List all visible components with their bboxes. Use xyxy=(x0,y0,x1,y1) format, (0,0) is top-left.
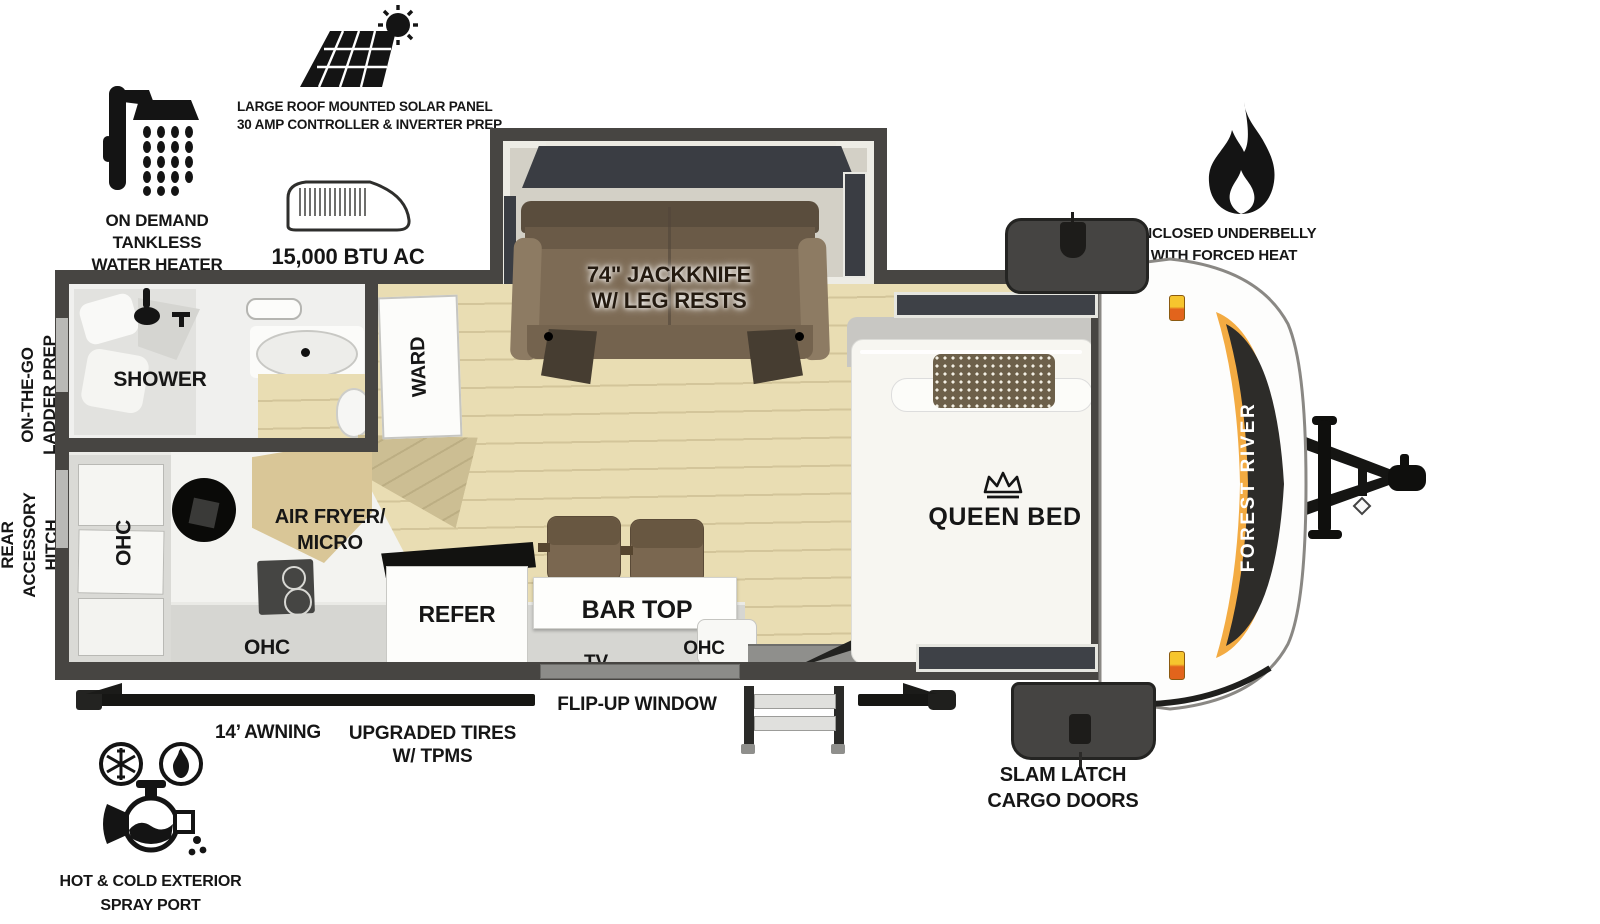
faucet-icon-stem xyxy=(179,312,184,327)
bathroom-light xyxy=(246,298,302,320)
forced-heat-flame-icon xyxy=(1206,102,1278,216)
sink-drain xyxy=(301,348,310,357)
bar-stool-2-tab xyxy=(621,546,633,555)
spray-port-icon xyxy=(93,738,213,862)
front-cap xyxy=(1098,254,1333,716)
bathroom-wall-right xyxy=(365,284,378,452)
queen-bed-label: QUEEN BED xyxy=(905,503,1105,533)
flip-up-window-label: FLIP-UP WINDOW xyxy=(537,694,737,716)
rear-accessory-hitch-label: REAR ACCESSORY HITCH xyxy=(0,470,63,620)
hot-flame-icon xyxy=(161,744,201,784)
marker-light-top xyxy=(1169,295,1185,321)
ac-label: 15,000 BTU AC xyxy=(258,244,438,270)
shower-label: SHOWER xyxy=(95,368,225,393)
slideout-wall-left xyxy=(490,128,503,284)
cold-snowflake-icon xyxy=(101,744,141,784)
slideout-right-window xyxy=(843,172,867,278)
entry-step-2 xyxy=(754,716,836,731)
shower-head-icon xyxy=(126,288,170,336)
cooktop-burner-1 xyxy=(282,566,306,590)
awning-label: 14’ AWNING xyxy=(193,722,343,744)
bed-window-top xyxy=(894,292,1098,318)
water-drops xyxy=(143,126,193,196)
ohc-left-label: OHC xyxy=(100,498,150,588)
awning-rail-right xyxy=(858,694,938,706)
air-fryer-label: AIR FRYER/ MICRO xyxy=(245,504,415,556)
tankless-water-heater-icon xyxy=(103,84,207,196)
brand-label: FOREST RIVER xyxy=(1238,372,1264,602)
ohc-kitchen-label: OHC xyxy=(236,636,298,661)
valve-icon xyxy=(103,780,206,855)
sofa-label: 74" JACKKNIFE W/ LEG RESTS xyxy=(544,262,794,314)
ac-unit-icon xyxy=(278,170,416,236)
bed-pillow xyxy=(933,354,1055,408)
solar-panel-icon xyxy=(292,5,424,93)
refrigerator: REFER xyxy=(386,566,528,664)
rear-wall-window-2 xyxy=(56,470,68,548)
sofa-pivot-right xyxy=(795,332,804,341)
solar-label: LARGE ROOF MOUNTED SOLAR PANEL 30 AMP CO… xyxy=(237,98,477,134)
rv-floorplan-diagram: ON DEMAND TANKLESS WATER HEATER LARGE RO… xyxy=(0,0,1600,924)
cooktop-burner-2 xyxy=(284,588,312,616)
bar-stool-2-back xyxy=(631,520,703,548)
cargo-box-handle xyxy=(1069,714,1091,744)
bar-stool-1-back xyxy=(548,517,620,545)
entry-steps-foot-right xyxy=(831,744,845,754)
entry-step-1 xyxy=(754,694,836,709)
slideout-top-window xyxy=(522,146,858,188)
ward-label: WARD xyxy=(406,307,434,428)
slideout-top-window-frame xyxy=(546,142,836,146)
marker-light-bottom xyxy=(1169,651,1185,680)
flip-up-window xyxy=(540,664,740,679)
propane-regulator-stem xyxy=(1071,212,1074,224)
propane-regulator xyxy=(1060,222,1086,258)
spray-port-label: HOT & COLD EXTERIOR SPRAY PORT xyxy=(58,870,243,918)
bar-stool-1-tab xyxy=(538,543,550,552)
slideout-wall-right xyxy=(874,128,887,284)
wall-top-left xyxy=(55,270,503,284)
bathroom-wall-bottom xyxy=(69,438,378,452)
rear-wall-window-1 xyxy=(56,318,68,392)
cabinet-door-3 xyxy=(78,598,164,656)
kitchen-sink-basin xyxy=(189,498,220,529)
water-heater-label: ON DEMAND TANKLESS WATER HEATER xyxy=(67,210,247,276)
bar-stool-2 xyxy=(630,519,704,585)
slideout-wall-top xyxy=(490,128,887,141)
sofa-pivot-left xyxy=(544,332,553,341)
tires-label: UPGRADED TIRES W/ TPMS xyxy=(340,722,525,768)
sun-icon xyxy=(378,5,418,45)
cargo-doors-label: SLAM LATCH CARGO DOORS xyxy=(963,762,1163,814)
crown-icon xyxy=(980,470,1026,500)
bed-window-bottom xyxy=(916,644,1098,672)
ohc-bar-label: OHC xyxy=(674,638,734,660)
entry-steps-rail-left xyxy=(744,686,754,746)
bar-stool-1 xyxy=(547,516,621,582)
refer-label: REFER xyxy=(419,601,496,628)
awning-rail xyxy=(80,694,535,706)
entry-steps-foot-left xyxy=(741,744,755,754)
wardrobe: WARD xyxy=(378,295,463,440)
